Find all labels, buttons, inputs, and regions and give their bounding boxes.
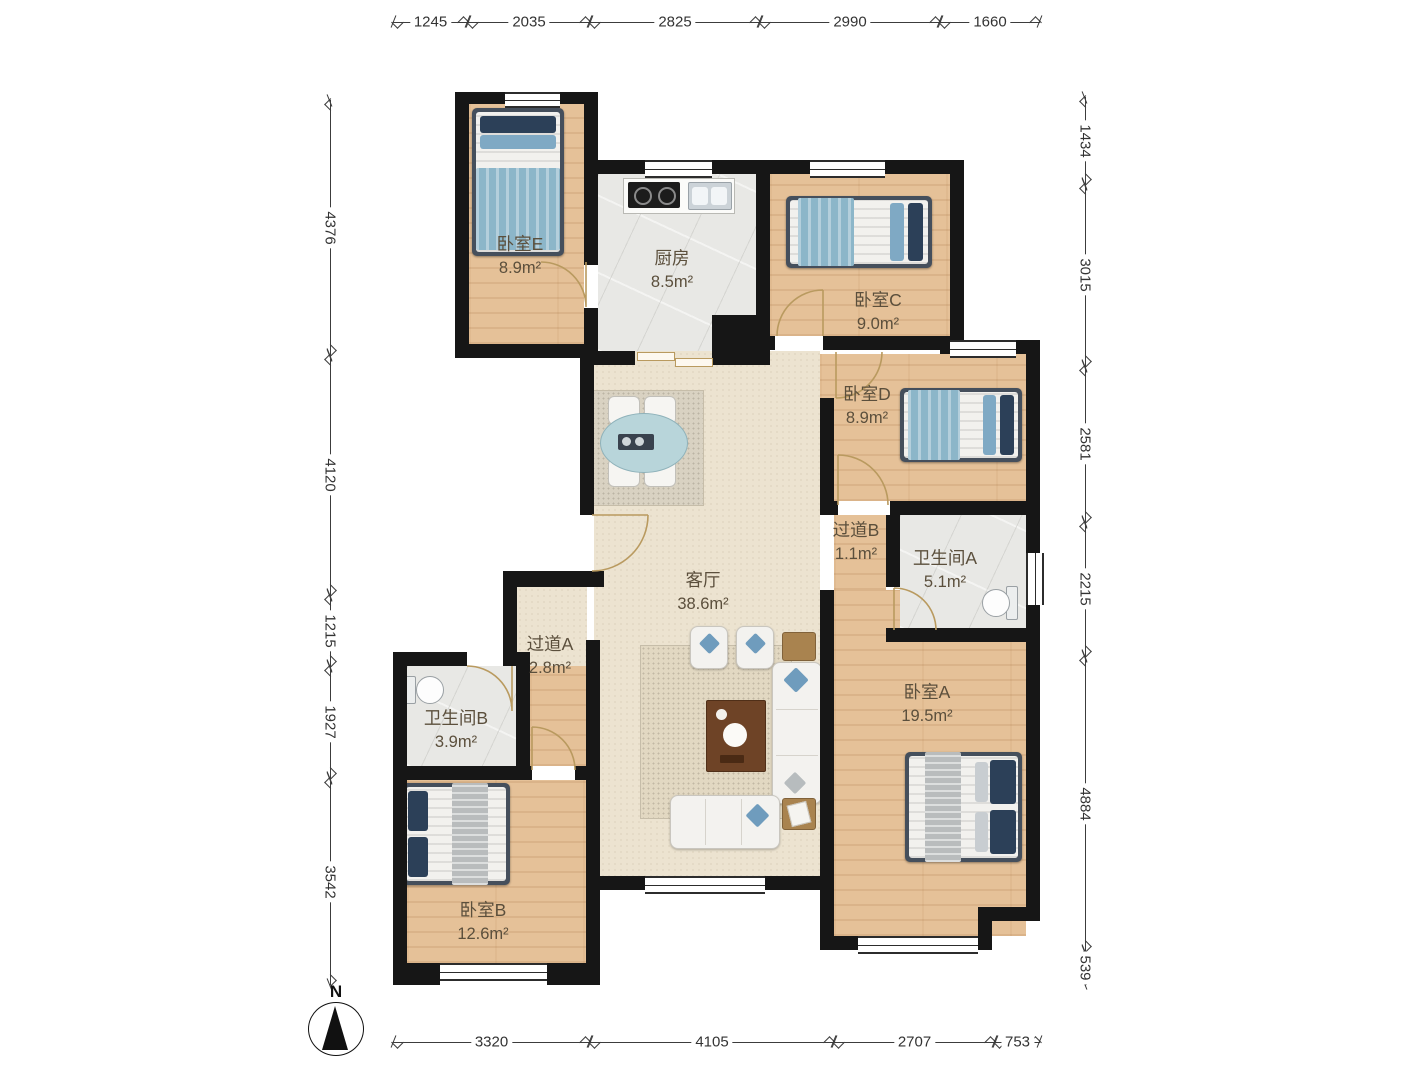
dimension-label: 4105 [691,1034,732,1051]
dimension-label: 2707 [894,1034,935,1051]
dimension-label: 4120 [322,454,339,495]
room-name: 卫生间A [885,546,1005,571]
dimension-bottom-2: 4105 [590,1035,834,1049]
room-name: 卧室B [423,898,543,923]
dimension-top-1: 1245 [393,15,468,29]
compass: N [300,982,372,1060]
dimension-right-5: 4884 [1078,656,1092,951]
room-label-kitchen: 厨房 8.5m² [612,246,732,295]
dimension-label: 2990 [829,14,870,31]
floorplan: 卧室E 8.9m² 厨房 8.5m² 卧室C 9.0m² 卧室D 8.9m² 过… [0,0,1420,1065]
dimension-right-6: 539 [1078,951,1092,984]
dimension-top-4: 2990 [760,15,940,29]
dimension-label: 3015 [1077,254,1094,295]
room-name: 卧室A [867,680,987,705]
dimension-right-4: 2215 [1078,522,1092,656]
dimension-left-4: 1927 [323,666,337,778]
room-name: 厨房 [612,246,732,271]
dimension-label: 1660 [969,14,1010,31]
room-label-bedroom-c: 卧室C 9.0m² [818,288,938,337]
dimension-label: 753 [1001,1034,1034,1051]
room-name: 卧室E [460,232,580,257]
door-arc [532,727,575,770]
room-area: 19.5m² [867,705,987,729]
door-arc [592,515,648,571]
dimension-bottom-3: 2707 [834,1035,995,1049]
dimension-label: 2215 [1077,568,1094,609]
dimension-label: 1215 [322,610,339,651]
dimension-right-1: 1434 [1078,97,1092,184]
room-area: 8.9m² [460,257,580,281]
dimension-left-5: 3542 [323,778,337,985]
room-label-bedroom-e: 卧室E 8.9m² [460,232,580,281]
dimension-label: 2035 [508,14,549,31]
dimension-label: 3320 [471,1034,512,1051]
dimension-left-1: 4376 [323,100,337,355]
dimension-label: 4376 [322,207,339,248]
dimension-left-3: 1215 [323,595,337,666]
dimension-label: 1434 [1077,120,1094,161]
room-area: 9.0m² [818,313,938,337]
room-label-bathroom-b: 卫生间B 3.9m² [396,706,516,755]
dimension-label: 3542 [322,861,339,902]
room-label-bedroom-d: 卧室D 8.9m² [807,382,927,431]
room-label-bedroom-a: 卧室A 19.5m² [867,680,987,729]
north-arrow-icon [322,1006,348,1050]
dimension-label: 1927 [322,701,339,742]
room-name: 卫生间B [396,706,516,731]
room-area: 3.9m² [396,731,516,755]
dimension-top-2: 2035 [468,15,590,29]
room-name: 客厅 [643,568,763,593]
room-name: 卧室D [807,382,927,407]
room-area: 2.8m² [490,657,610,681]
dimension-bottom-1: 3320 [393,1035,590,1049]
room-label-hallway-a: 过道A 2.8m² [490,632,610,681]
door-arcs-layer [0,0,1420,1065]
room-area: 38.6m² [643,593,763,617]
dimension-bottom-4: 753 [995,1035,1040,1049]
dimension-label: 4884 [1077,783,1094,824]
door-arc [838,455,888,505]
room-area: 5.1m² [885,571,1005,595]
room-name: 卧室C [818,288,938,313]
door-arc [777,290,823,336]
dimension-right-3: 2581 [1078,366,1092,522]
room-label-bathroom-a: 卫生间A 5.1m² [885,546,1005,595]
room-label-living-room: 客厅 38.6m² [643,568,763,617]
dimension-label: 2581 [1077,423,1094,464]
dimension-label: 539 [1077,951,1094,984]
room-area: 12.6m² [423,923,543,947]
room-name: 过道A [490,632,610,657]
room-name: 过道B [806,518,906,543]
dimension-label: 2825 [654,14,695,31]
dimension-top-3: 2825 [590,15,760,29]
dimension-left-2: 4120 [323,355,337,595]
dimension-right-2: 3015 [1078,184,1092,366]
dimension-top-5: 1660 [940,15,1040,29]
room-area: 8.5m² [612,271,732,295]
room-area: 8.9m² [807,407,927,431]
dimension-label: 1245 [410,14,451,31]
room-label-bedroom-b: 卧室B 12.6m² [423,898,543,947]
compass-north-label: N [330,982,342,1002]
